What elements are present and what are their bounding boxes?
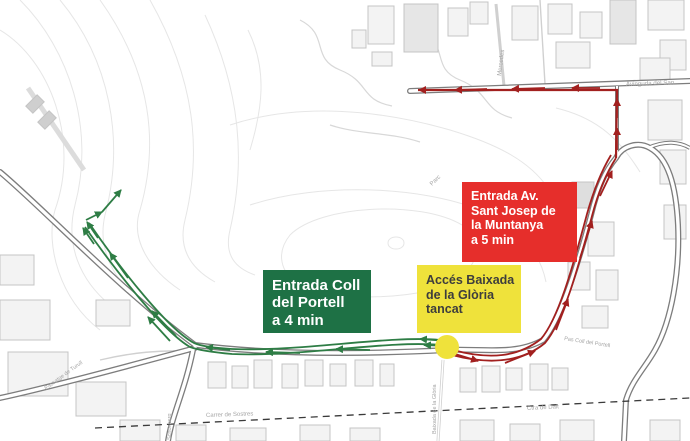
street-avinguda: Avinguda del San: [626, 79, 675, 88]
dashed-road: [95, 398, 690, 428]
street-sostres: Carrer de Sostres: [206, 411, 254, 419]
red-entrance-line4: a 5 min: [471, 233, 577, 248]
closed-access-line1: Accés Baixada: [426, 273, 521, 288]
base-map: Avinguda del San Mercedes Parc Pas Coll …: [0, 0, 690, 441]
red-entrance-callout: Entrada Av. Sant Josep de la Muntanya a …: [462, 182, 577, 262]
green-entrance-callout: Entrada Coll del Portell a 4 min: [263, 270, 371, 333]
traffic-map: Avinguda del San Mercedes Parc Pas Coll …: [0, 0, 690, 441]
closed-access-line2: de la Glòria: [426, 288, 521, 303]
green-entrance-line3: a 4 min: [272, 312, 371, 329]
closed-access-callout: Accés Baixada de la Glòria tancat: [417, 265, 521, 333]
green-entrance-line2: del Portell: [272, 294, 371, 311]
closed-access-marker: [435, 335, 459, 359]
street-pas-coll: Pas Coll del Portell: [564, 336, 611, 349]
red-entrance-line3: la Muntanya: [471, 218, 577, 233]
street-schonberg: Schonberg: [167, 413, 173, 440]
green-entrance-line1: Entrada Coll: [272, 277, 371, 294]
street-baixada: Baixada de la Glòria: [432, 384, 438, 434]
closed-access-line3: tancat: [426, 302, 521, 317]
red-entrance-line2: Sant Josep de: [471, 204, 577, 219]
street-ctra-dalt: Ctra de Dalt: [527, 404, 560, 412]
street-mercedes: Mercedes: [497, 49, 506, 76]
red-entrance-line1: Entrada Av.: [471, 189, 577, 204]
label-parc: Parc: [429, 174, 442, 187]
